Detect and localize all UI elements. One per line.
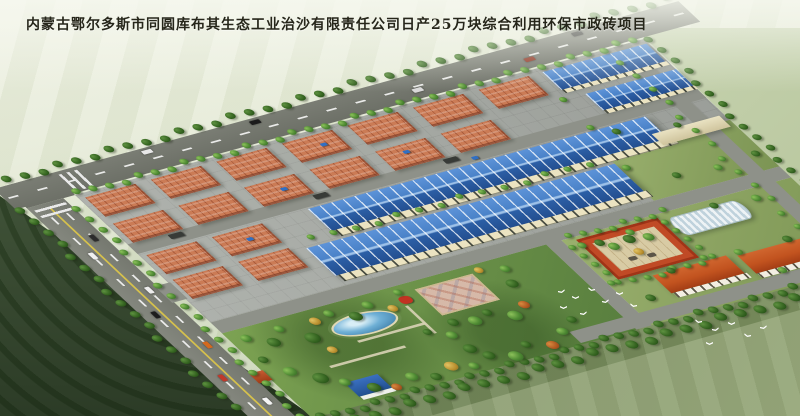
tree <box>696 320 715 330</box>
tree <box>677 324 696 334</box>
tree <box>657 327 676 337</box>
tree <box>363 75 378 84</box>
project-title: 内蒙古鄂尔多斯市同圆库布其生态工业治沙有限责任公司日产25万块综合利用环保市政砖… <box>26 14 647 34</box>
tree <box>514 371 533 381</box>
tree <box>477 369 492 378</box>
tree <box>750 133 764 141</box>
tree <box>494 374 513 384</box>
tree <box>641 327 656 336</box>
tree <box>751 304 770 314</box>
tree <box>190 123 205 132</box>
tree <box>771 300 790 310</box>
tree <box>400 398 419 408</box>
tree <box>548 359 567 369</box>
tree <box>120 141 135 150</box>
tree <box>433 56 448 65</box>
tree <box>69 156 84 165</box>
tree <box>622 339 641 349</box>
tree <box>760 291 775 300</box>
tree <box>382 395 397 404</box>
tree <box>420 394 439 404</box>
tree <box>731 308 750 318</box>
tree <box>437 381 452 390</box>
tree <box>716 100 730 108</box>
tree <box>440 390 459 400</box>
tree <box>711 311 730 321</box>
tree <box>532 355 547 364</box>
tree <box>666 317 681 326</box>
tree <box>785 292 800 302</box>
tree <box>764 144 778 152</box>
tree <box>0 175 14 184</box>
tree <box>294 413 308 416</box>
tree <box>474 378 493 388</box>
tree <box>603 343 622 353</box>
tree <box>366 410 385 416</box>
tree <box>485 41 500 50</box>
tree <box>455 382 474 392</box>
tree <box>681 315 696 324</box>
tree <box>682 67 696 75</box>
tree <box>583 347 602 357</box>
tree <box>312 90 327 99</box>
tree <box>669 57 683 65</box>
tree <box>492 367 507 376</box>
tree <box>529 362 548 372</box>
tree <box>626 329 641 338</box>
rendering-canvas: 内蒙古鄂尔多斯市同圆库布其生态工业治沙有限责任公司日产25万块综合利用环保市政砖… <box>0 0 800 416</box>
tree <box>242 108 257 117</box>
tree <box>657 0 672 2</box>
tree <box>568 355 587 365</box>
tree <box>642 336 661 346</box>
tree <box>386 406 405 416</box>
